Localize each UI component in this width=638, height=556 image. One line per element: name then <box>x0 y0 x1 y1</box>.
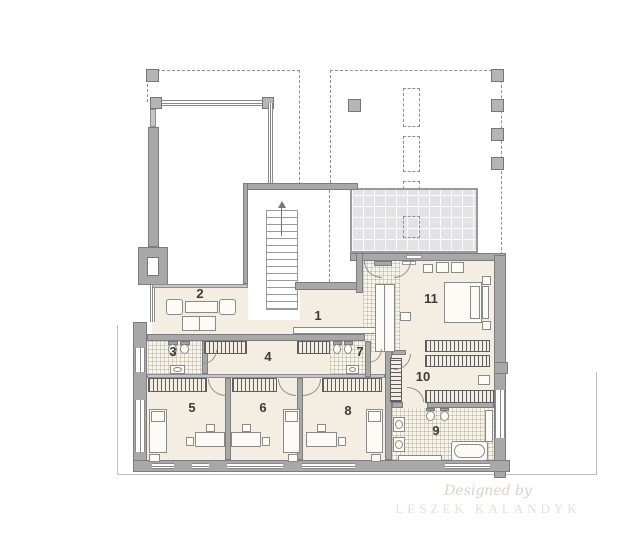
watermark-script: Designed by <box>378 483 598 499</box>
wardrobe <box>148 378 207 392</box>
nightstand <box>482 321 491 330</box>
nightstand <box>149 454 160 462</box>
dashed-outline <box>147 70 300 71</box>
room-label-8: 8 <box>338 403 358 419</box>
window <box>302 463 355 469</box>
column <box>150 97 162 109</box>
dashed-outline <box>299 70 300 185</box>
toilet <box>426 411 435 421</box>
sink-basin <box>395 420 403 429</box>
room-label-5: 5 <box>182 400 202 416</box>
bench <box>423 264 433 273</box>
wall <box>350 253 506 261</box>
chair <box>186 437 194 446</box>
window <box>268 103 273 183</box>
window <box>495 390 505 438</box>
armchair <box>219 299 236 315</box>
floor-plan: 1 2 3 4 5 6 7 8 9 10 11 Designed by LESZ… <box>0 0 638 556</box>
column <box>491 69 504 82</box>
wall <box>147 334 365 341</box>
dashed-outline <box>330 70 502 71</box>
void-open-below <box>300 190 356 284</box>
chair <box>242 424 251 432</box>
column <box>491 99 504 112</box>
sink-basin <box>173 367 182 372</box>
wardrobe <box>322 378 382 392</box>
room-label-3: 3 <box>163 344 183 360</box>
sink-basin <box>395 440 403 449</box>
eaves-line <box>117 474 597 475</box>
stool <box>400 312 411 321</box>
chair <box>338 437 346 446</box>
window <box>150 285 155 322</box>
sofa-cushion-line <box>199 317 200 330</box>
wall <box>392 402 403 408</box>
wardrobe <box>425 340 490 352</box>
console-shelf <box>293 327 377 334</box>
nightstand <box>482 276 491 285</box>
nightstand <box>371 454 381 462</box>
wall <box>295 282 363 290</box>
window <box>445 463 490 469</box>
wardrobe <box>425 355 490 367</box>
watermark-name: LESZEK KALANDYK <box>378 501 598 517</box>
armchair <box>166 299 183 315</box>
wall <box>150 109 156 127</box>
dashed-chimney-shaft <box>403 136 420 172</box>
desk <box>306 432 337 447</box>
room-label-10: 10 <box>411 369 435 385</box>
room-label-6: 6 <box>253 400 273 416</box>
stool <box>478 375 490 385</box>
sink-basin <box>349 367 356 372</box>
window <box>152 463 174 469</box>
wall <box>243 183 248 284</box>
wall <box>243 183 358 190</box>
wall <box>148 127 159 247</box>
wall <box>356 253 363 293</box>
coffee-table <box>185 301 218 313</box>
dashed-chimney-shaft <box>403 88 420 127</box>
pillow <box>368 411 381 422</box>
column <box>348 99 361 112</box>
chimney-flue <box>147 257 159 276</box>
dashed-outline <box>147 84 148 102</box>
cabinet-line <box>384 285 385 351</box>
window <box>135 348 145 372</box>
headboard <box>482 286 489 319</box>
stairs-up-arrow <box>278 201 286 208</box>
pillow <box>285 411 298 422</box>
wall <box>494 362 508 374</box>
bathtub-basin <box>454 444 485 458</box>
tall-cabinet <box>375 284 395 352</box>
pillow <box>470 286 480 319</box>
chair <box>317 424 326 432</box>
dashed-outline <box>330 70 331 188</box>
wardrobe <box>297 341 330 354</box>
room-label-9: 9 <box>426 423 446 439</box>
column <box>491 157 504 170</box>
dresser <box>436 262 449 273</box>
window <box>192 463 209 469</box>
room-label-4: 4 <box>258 349 278 365</box>
dashed-chimney-shaft <box>403 216 420 238</box>
bench <box>398 455 442 461</box>
pillow <box>151 411 165 422</box>
room-label-7: 7 <box>350 344 370 360</box>
dresser <box>451 262 464 273</box>
column <box>146 69 159 82</box>
column <box>491 128 504 141</box>
bidet <box>440 411 449 421</box>
designer-watermark: Designed by LESZEK KALANDYK <box>378 483 598 517</box>
window <box>135 400 145 452</box>
room-label-1: 1 <box>308 308 328 324</box>
eaves-line <box>596 372 597 475</box>
stairs <box>266 210 298 310</box>
chair <box>206 424 215 432</box>
vent <box>406 255 422 259</box>
nightstand <box>288 454 298 462</box>
eaves-line <box>117 325 118 475</box>
room-label-2: 2 <box>190 286 210 302</box>
void-dashed-line <box>329 190 330 282</box>
desk <box>231 432 261 447</box>
toilet <box>333 344 341 354</box>
window <box>152 100 272 106</box>
stairs-up-arrow <box>281 208 282 236</box>
desk <box>195 432 225 447</box>
room-label-11: 11 <box>419 291 443 307</box>
wardrobe <box>232 378 277 392</box>
wardrobe <box>425 390 494 403</box>
chair <box>262 437 270 446</box>
window <box>227 463 283 469</box>
tall-cabinet <box>485 410 493 442</box>
